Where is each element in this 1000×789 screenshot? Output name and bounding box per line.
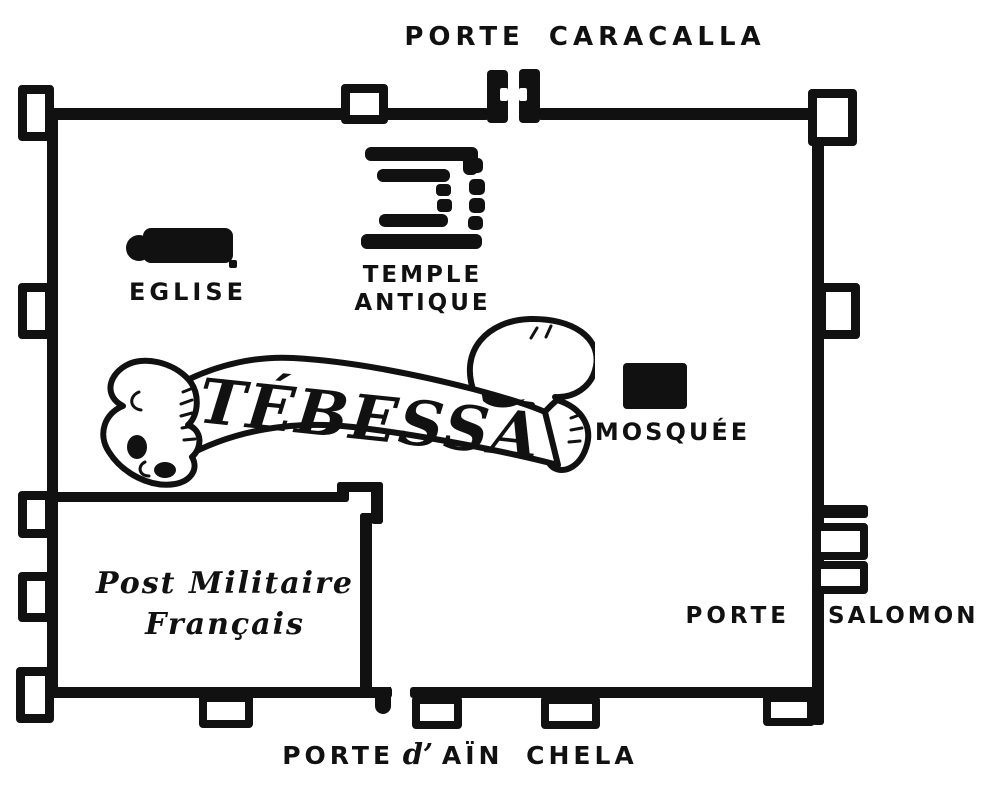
tebessa-city-plan: TÉBESSA PORTE CARACALLA EGLISE TEMPLE AN… bbox=[0, 0, 1000, 789]
tower-southwest-corner bbox=[16, 667, 54, 723]
wall-north-east-segment bbox=[538, 108, 823, 120]
tower-north-mid bbox=[341, 84, 388, 124]
eglise-foot-mark bbox=[229, 260, 237, 268]
label-eglise: EGLISE bbox=[108, 278, 268, 306]
label-mosquee: MOSQUÉE bbox=[580, 418, 765, 446]
label-temple-line1: TEMPLE bbox=[330, 261, 515, 289]
wall-south-gate-hook bbox=[375, 687, 391, 714]
temple-plan-top-bar bbox=[365, 147, 477, 161]
temple-plan-bottom-bar bbox=[361, 234, 482, 249]
temple-plan-inner-square-2 bbox=[437, 199, 452, 212]
caracalla-pier-notch-left bbox=[500, 88, 508, 101]
temple-plan-column-dot-3 bbox=[469, 198, 485, 213]
label-post-line1: Post Militaire bbox=[80, 563, 370, 604]
eglise-icon bbox=[143, 228, 233, 263]
label-porte-salomon-east-word: SALOMON bbox=[828, 603, 978, 629]
salomon-gate-tower-lower bbox=[813, 561, 868, 594]
tower-west-lower bbox=[18, 572, 54, 622]
label-post-militaire: Post Militaire Français bbox=[80, 563, 370, 645]
ribbon-left-ink-spot-1 bbox=[127, 435, 147, 459]
label-ain-chela-rest: AÏN CHELA bbox=[442, 741, 638, 770]
label-porte-caracalla: PORTE CARACALLA bbox=[395, 22, 775, 52]
tower-west-middle bbox=[18, 491, 54, 538]
tower-west-upper bbox=[18, 283, 54, 339]
tower-south-c bbox=[541, 696, 600, 729]
label-porte-ain-chela: PORTE d’ AÏN CHELA bbox=[270, 737, 650, 771]
label-post-line2: Français bbox=[80, 604, 370, 645]
wall-north-west-segment bbox=[48, 108, 489, 120]
mosquee-icon bbox=[623, 363, 687, 409]
label-ain-chela-porte: PORTE bbox=[282, 741, 394, 770]
tower-northwest-corner bbox=[18, 85, 54, 141]
ribbon-left-curl bbox=[103, 361, 199, 485]
eglise-apse-icon bbox=[126, 235, 152, 261]
label-temple-line2: ANTIQUE bbox=[330, 289, 515, 317]
temple-plan-column-dot-1 bbox=[468, 158, 483, 173]
wall-east bbox=[812, 112, 824, 725]
temple-plan-inner-top-bar bbox=[377, 169, 450, 182]
label-porte-salomon-west-word: PORTE bbox=[672, 603, 790, 629]
temple-plan-inner-square-1 bbox=[436, 184, 451, 196]
tower-southeast-corner bbox=[763, 694, 815, 726]
temple-plan-inner-bottom-bar bbox=[379, 214, 448, 227]
tower-south-a bbox=[199, 694, 253, 728]
label-temple-antique: TEMPLE ANTIQUE bbox=[330, 261, 515, 317]
tebessa-ribbon-banner: TÉBESSA bbox=[85, 300, 595, 510]
temple-plan-column-dot-2 bbox=[469, 179, 485, 195]
temple-plan-column-dot-4 bbox=[468, 216, 483, 230]
label-ain-chela-d: d’ bbox=[403, 737, 433, 771]
wall-south-east-segment bbox=[410, 687, 824, 698]
tower-east-upper bbox=[817, 283, 860, 339]
tower-south-b bbox=[412, 696, 462, 729]
ribbon-left-ink-spot-2 bbox=[154, 462, 176, 478]
caracalla-pier-notch-right bbox=[519, 88, 527, 101]
salomon-gate-tower-upper bbox=[813, 523, 868, 560]
tower-northeast-corner bbox=[808, 89, 857, 146]
salomon-gate-bar bbox=[813, 505, 868, 518]
